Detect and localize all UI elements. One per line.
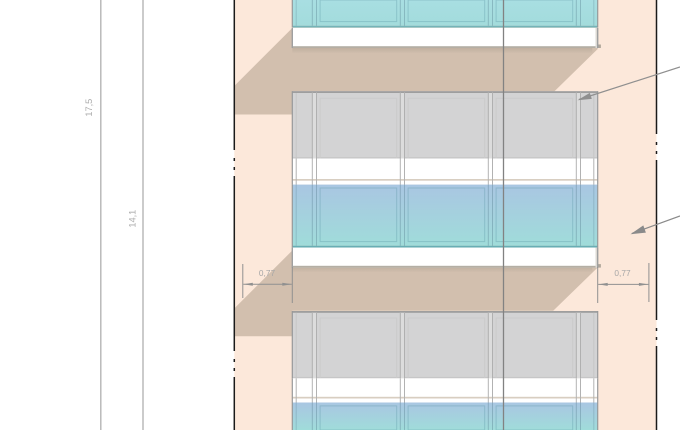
svg-text:14,1: 14,1 bbox=[127, 210, 137, 228]
svg-text:17,5: 17,5 bbox=[84, 99, 94, 117]
svg-text:0,77: 0,77 bbox=[259, 268, 276, 278]
svg-text:0,77: 0,77 bbox=[614, 268, 631, 278]
